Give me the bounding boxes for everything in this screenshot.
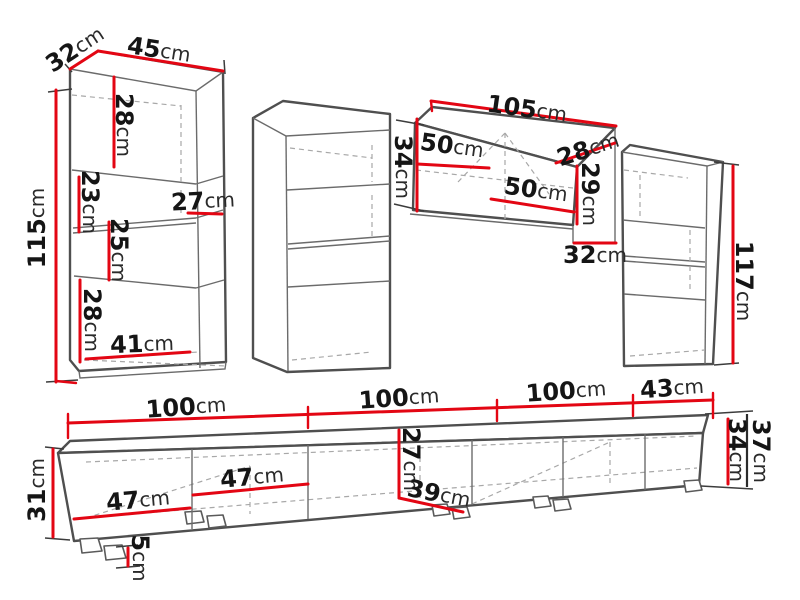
stand-foot bbox=[553, 499, 571, 511]
stand-foot bbox=[185, 511, 204, 524]
dim-left-bottom-width: 41cm bbox=[110, 329, 175, 359]
dim-right-height: 117cm bbox=[730, 241, 758, 322]
dim-stand-total-height: 37cm bbox=[747, 419, 775, 483]
diagram-canvas: 32cm 45cm 115cm 28cm 23cm 27cm 25cm 28cm… bbox=[0, 0, 800, 600]
dim-stand-right-inner-height: 34cm bbox=[723, 418, 751, 482]
stand-foot bbox=[207, 515, 226, 528]
stand-foot bbox=[684, 480, 702, 492]
dim-left-height: 115cm bbox=[23, 188, 51, 269]
middle-tall-cabinet bbox=[253, 101, 390, 372]
dim-left-top-section: 28cm bbox=[110, 93, 138, 157]
dim-stand-front-height: 31cm bbox=[23, 458, 51, 522]
dim-left-lower-niche: 25cm bbox=[105, 218, 133, 282]
dim-wall-side-depth: 32cm bbox=[563, 241, 627, 269]
stand-foot bbox=[533, 496, 551, 508]
furniture-dimension-diagram: 32cm 45cm 115cm 28cm 23cm 27cm 25cm 28cm… bbox=[0, 0, 800, 600]
dim-wall-inner-height: 29cm bbox=[576, 162, 604, 226]
right-tall-cabinet bbox=[622, 145, 739, 366]
dim-left-bottom-section: 28cm bbox=[78, 288, 106, 352]
dim-left-shelf-depth: 27cm bbox=[170, 185, 235, 216]
stand-foot bbox=[80, 538, 102, 553]
stand-foot bbox=[104, 545, 126, 560]
dim-stand-foot-height: 5cm bbox=[126, 534, 154, 581]
dim-wall-height: 34cm bbox=[389, 135, 417, 199]
dim-left-upper-niche: 23cm bbox=[76, 170, 104, 234]
